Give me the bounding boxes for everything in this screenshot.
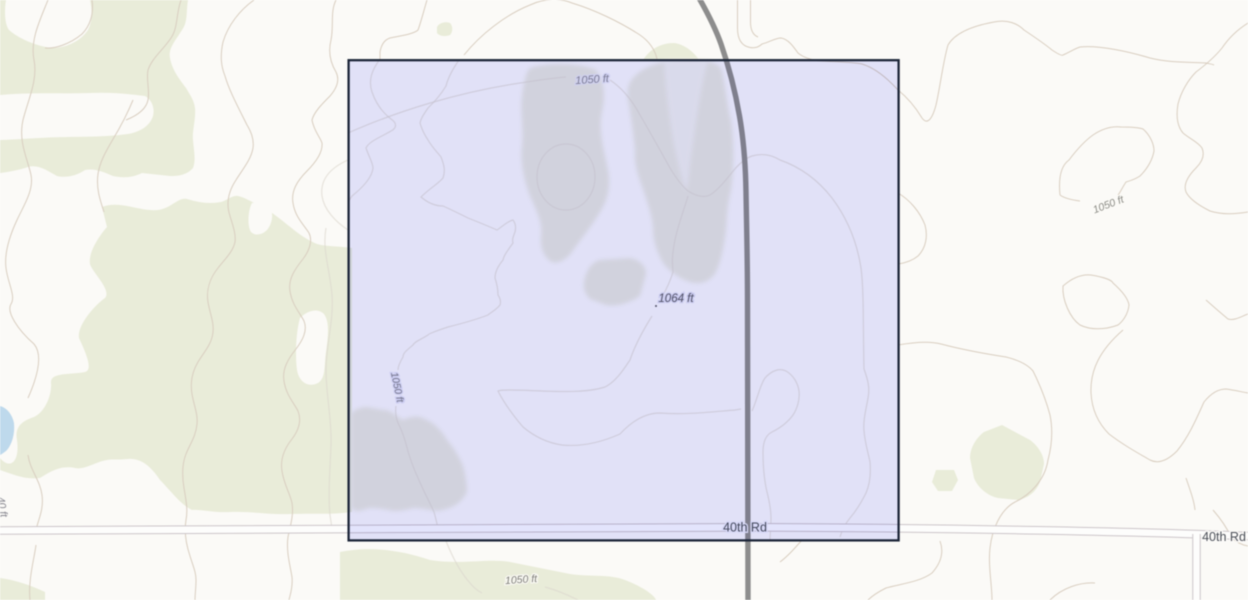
svg-text:40th Rd: 40th Rd bbox=[1202, 530, 1246, 544]
svg-text:1050 ft: 1050 ft bbox=[505, 573, 539, 587]
